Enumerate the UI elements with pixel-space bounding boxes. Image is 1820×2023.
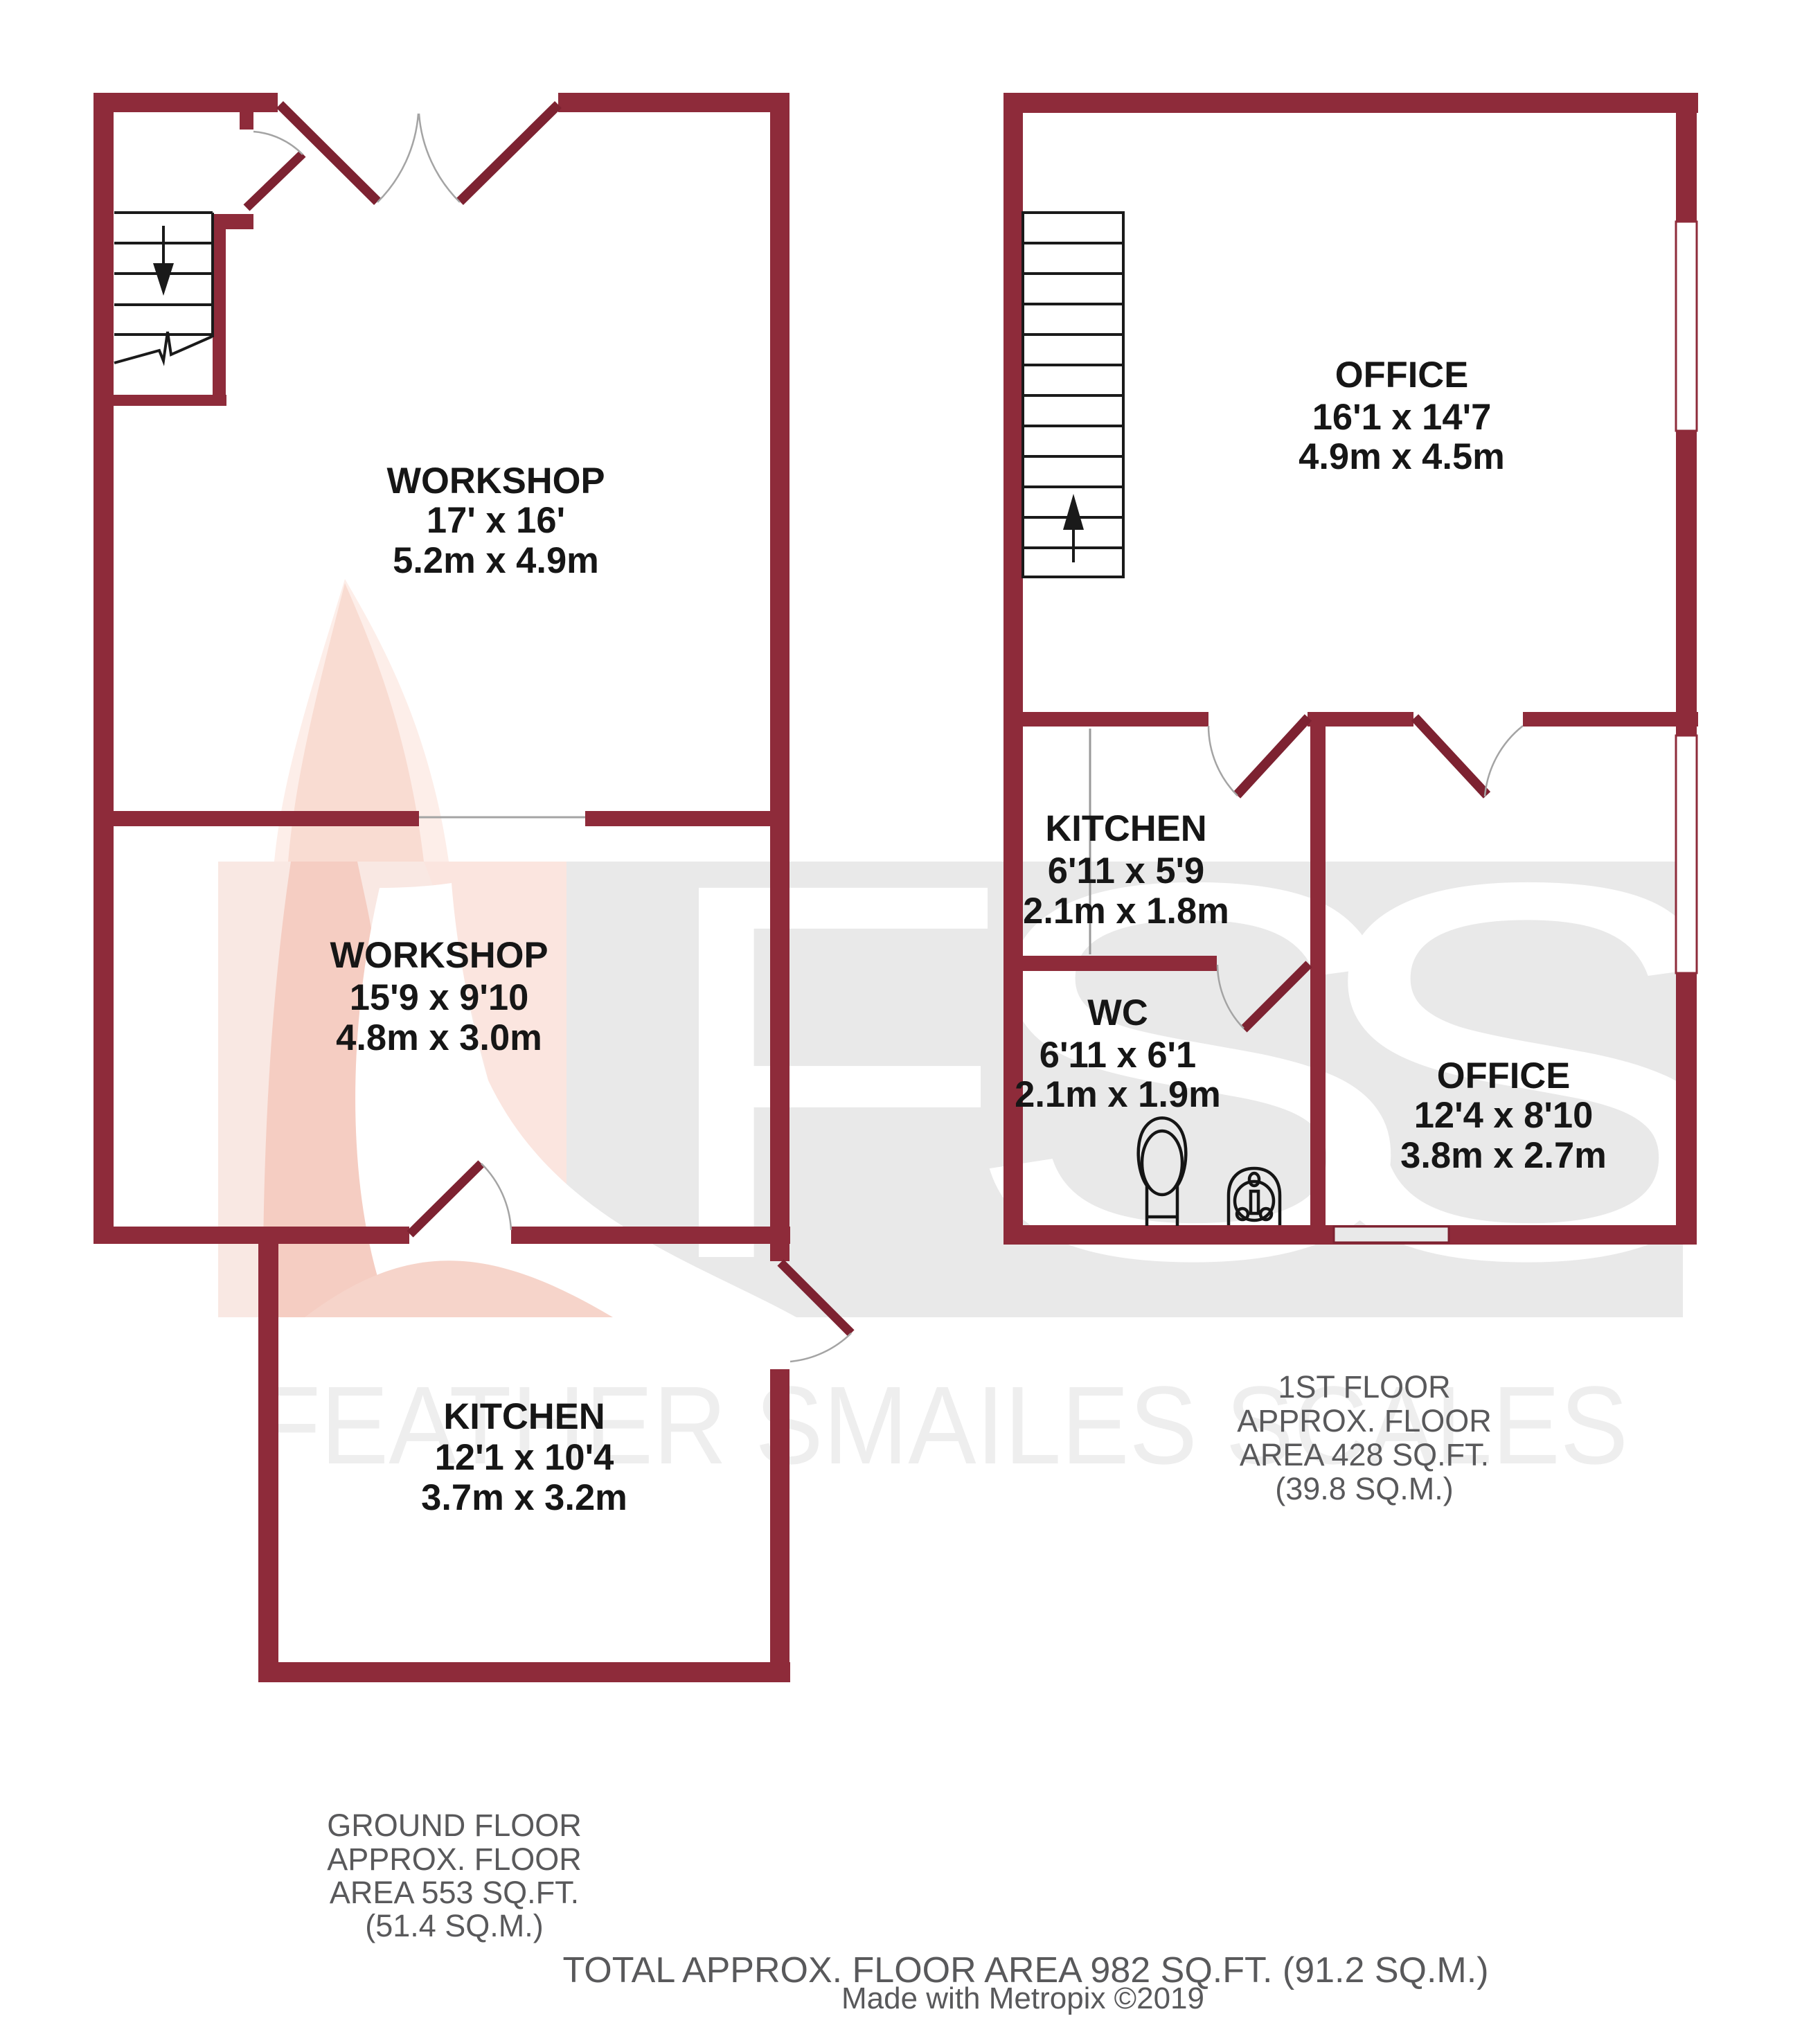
svg-text:(51.4 SQ.M.): (51.4 SQ.M.) <box>365 1908 544 1943</box>
svg-text:12'4 x 8'10: 12'4 x 8'10 <box>1414 1095 1594 1136</box>
svg-text:KITCHEN: KITCHEN <box>1045 808 1206 849</box>
svg-text:APPROX. FLOOR: APPROX. FLOOR <box>1237 1403 1492 1438</box>
svg-text:2.1m x 1.8m: 2.1m x 1.8m <box>1023 891 1229 932</box>
svg-text:KITCHEN: KITCHEN <box>443 1396 605 1437</box>
svg-text:AREA 553 SQ.FT.: AREA 553 SQ.FT. <box>330 1875 579 1910</box>
svg-text:16'1 x 14'7: 16'1 x 14'7 <box>1312 397 1492 438</box>
svg-text:2.1m x 1.9m: 2.1m x 1.9m <box>1015 1074 1221 1115</box>
svg-text:APPROX. FLOOR: APPROX. FLOOR <box>327 1842 582 1877</box>
svg-text:17' x 16': 17' x 16' <box>427 500 565 541</box>
svg-text:WC: WC <box>1087 992 1148 1033</box>
svg-text:Made with Metropix ©2019: Made with Metropix ©2019 <box>841 1981 1204 2015</box>
svg-text:1ST FLOOR: 1ST FLOOR <box>1278 1369 1450 1405</box>
svg-text:4.8m x 3.0m: 4.8m x 3.0m <box>336 1017 542 1058</box>
svg-text:3.8m x 2.7m: 3.8m x 2.7m <box>1400 1135 1607 1176</box>
svg-text:12'1 x 10'4: 12'1 x 10'4 <box>435 1437 614 1478</box>
svg-text:6'11 x 6'1: 6'11 x 6'1 <box>1040 1035 1196 1076</box>
svg-text:6'11 x 5'9: 6'11 x 5'9 <box>1048 850 1204 891</box>
svg-text:WORKSHOP: WORKSHOP <box>330 935 548 976</box>
svg-text:15'9 x 9'10: 15'9 x 9'10 <box>350 977 529 1018</box>
svg-text:4.9m x 4.5m: 4.9m x 4.5m <box>1299 436 1505 477</box>
svg-text:OFFICE: OFFICE <box>1335 355 1469 395</box>
svg-text:GROUND FLOOR: GROUND FLOOR <box>327 1808 582 1843</box>
svg-text:AREA 428 SQ.FT.: AREA 428 SQ.FT. <box>1240 1437 1489 1472</box>
svg-text:3.7m x 3.2m: 3.7m x 3.2m <box>421 1477 627 1518</box>
svg-text:WORKSHOP: WORKSHOP <box>387 461 605 501</box>
svg-text:(39.8 SQ.M.): (39.8 SQ.M.) <box>1275 1471 1454 1506</box>
svg-text:5.2m x 4.9m: 5.2m x 4.9m <box>393 540 599 581</box>
svg-text:OFFICE: OFFICE <box>1437 1055 1571 1096</box>
